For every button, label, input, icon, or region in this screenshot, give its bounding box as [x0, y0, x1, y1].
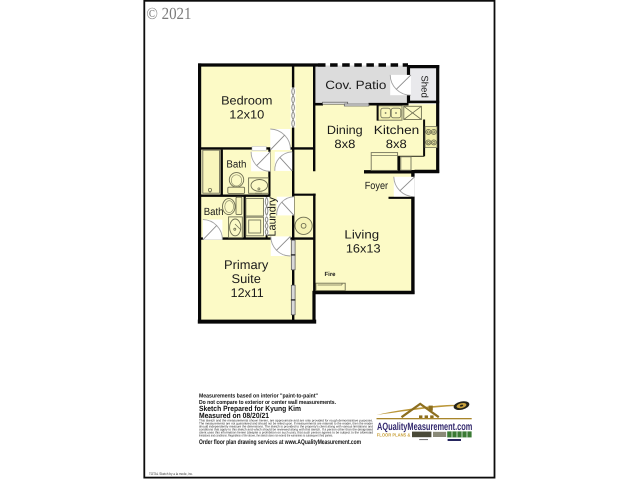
svg-text:© 2021: © 2021: [147, 4, 192, 23]
svg-text:TOTAL Sketch by a la mode, inc: TOTAL Sketch by a la mode, inc.: [149, 472, 193, 476]
svg-text:Shed: Shed: [419, 75, 430, 98]
svg-text:8x8: 8x8: [386, 137, 407, 151]
svg-text:Primary: Primary: [224, 258, 269, 272]
svg-text:Fire: Fire: [324, 271, 336, 278]
svg-text:limitations and conditions. Re: limitations and conditions. Regardless o…: [199, 433, 333, 437]
svg-text:Cov. Patio: Cov. Patio: [325, 78, 386, 92]
svg-text:Suite: Suite: [232, 272, 261, 286]
svg-text:Dining: Dining: [327, 123, 363, 137]
svg-text:FLOOR PLANS &: FLOOR PLANS &: [377, 432, 411, 437]
svg-text:Order floor plan drawing servi: Order floor plan drawing services at www…: [199, 439, 361, 446]
svg-text:Living: Living: [344, 227, 379, 241]
svg-text:Bath: Bath: [226, 159, 246, 170]
svg-text:Bedroom: Bedroom: [221, 93, 272, 107]
svg-text:Foyer: Foyer: [365, 181, 389, 192]
svg-text:Laundry: Laundry: [266, 197, 278, 237]
svg-text:Measurements based on interior: Measurements based on interior "paint-to…: [199, 393, 318, 400]
svg-text:12x10: 12x10: [229, 108, 264, 122]
svg-text:Kitchen: Kitchen: [374, 123, 420, 137]
svg-text:Bath: Bath: [204, 207, 224, 218]
svg-text:16x13: 16x13: [346, 241, 381, 255]
svg-text:12x11: 12x11: [231, 286, 264, 300]
svg-text:8x8: 8x8: [334, 137, 355, 151]
